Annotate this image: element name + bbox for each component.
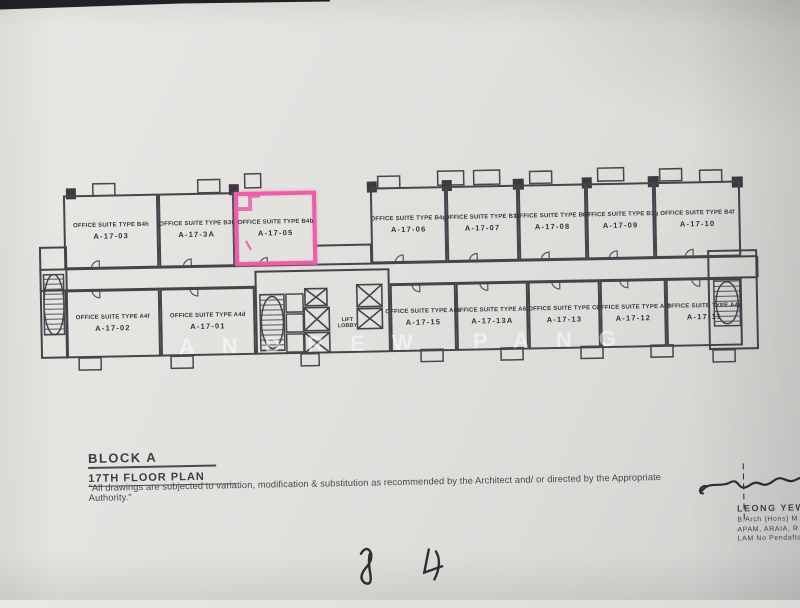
- room-a-17-03: OFFICE SUITE TYPE B4h A-17-03: [63, 194, 159, 270]
- architect-credential-3: LAM No Pendaftar: [738, 534, 800, 543]
- room-a-17-01: OFFICE SUITE TYPE A4d A-17-01: [160, 287, 256, 357]
- architect-credential-2: APAM, ARAIA, R: [737, 525, 800, 534]
- left-stair-tower: [39, 246, 69, 359]
- room-a-17-3a: OFFICE SUITE TYPE B3f A-17-3A: [158, 192, 235, 267]
- room-a-17-13a: OFFICE SUITE TYPE A6c A-17-13A: [456, 282, 529, 351]
- room-a-17-02: OFFICE SUITE TYPE A4f A-17-02: [65, 289, 161, 359]
- room-type-label: OFFICE SUITE TYPE C2: [528, 305, 600, 312]
- room-a-17-10: OFFICE SUITE TYPE B4f A-17-10: [654, 180, 741, 258]
- room-unit-label: A-17-10: [680, 219, 716, 229]
- room-type-label: OFFICE SUITE TYPE B4f: [660, 210, 734, 217]
- architect-signature-block: LEONG YEW K B.Arch (Hons) M APAM, ARAIA,…: [737, 502, 800, 545]
- photo-of-floor-plan: { "plan": { "watermark": "ANDREW PANG", …: [0, 0, 800, 600]
- room-a-17-08: OFFICE SUITE TYPE B3c A-17-08: [518, 183, 587, 260]
- room-unit-label: A-17-13: [547, 315, 583, 325]
- block-title: BLOCK A: [88, 449, 216, 469]
- room-unit-label: A-17-12: [616, 313, 652, 323]
- lift-lobby-label: LIFT LOBBY: [336, 317, 358, 329]
- paper-content: OFFICE SUITE TYPE B4h A-17-03 OFFICE SUI…: [0, 0, 800, 608]
- room-a-17-09: OFFICE SUITE TYPE B3g A-17-09: [586, 182, 655, 259]
- room-type-label: OFFICE SUITE TYPE B3c: [515, 212, 591, 219]
- room-unit-label: A-17-01: [190, 321, 226, 331]
- handwritten-initials: [361, 547, 443, 583]
- room-unit-label: A-17-15: [406, 317, 442, 327]
- room-unit-label: A-17-03: [93, 231, 129, 241]
- room-type-label: OFFICE SUITE TYPE A6c: [455, 307, 530, 314]
- room-type-label: OFFICE SUITE TYPE B3f: [159, 220, 233, 227]
- room-type-label: OFFICE SUITE TYPE A4d: [170, 312, 246, 319]
- room-a-17-07: OFFICE SUITE TYPE B3a A-17-07: [446, 185, 519, 262]
- room-a-17-06: OFFICE SUITE TYPE B4g A-17-06: [370, 186, 447, 263]
- room-a-17-05-highlighted: OFFICE SUITE TYPE B4b A-17-05: [234, 191, 317, 267]
- room-a-17-13: OFFICE SUITE TYPE C2 A-17-13: [528, 280, 601, 349]
- right-stair-tower: [707, 249, 759, 350]
- room-unit-label: A-17-02: [95, 323, 131, 333]
- room-a-17-12: OFFICE SUITE TYPE A6f A-17-12: [600, 279, 667, 348]
- room-type-label: OFFICE SUITE TYPE B4g: [370, 215, 446, 222]
- room-unit-label: A-17-07: [465, 223, 501, 233]
- architect-credential-1: B.Arch (Hons) M: [737, 515, 800, 524]
- room-unit-label: A-17-13A: [471, 316, 513, 326]
- room-type-label: OFFICE SUITE TYPE B3a: [445, 214, 521, 221]
- room-unit-label: A-17-3A: [178, 230, 215, 240]
- room-type-label: OFFICE SUITE TYPE A5b: [385, 308, 461, 315]
- room-type-label: OFFICE SUITE TYPE A4f: [76, 314, 150, 321]
- room-unit-label: A-17-06: [391, 224, 427, 234]
- room-a-17-15: OFFICE SUITE TYPE A5b A-17-15: [390, 283, 457, 352]
- room-type-label: OFFICE SUITE TYPE B4h: [73, 222, 149, 229]
- room-type-label: OFFICE SUITE TYPE A6f: [596, 304, 670, 311]
- architect-name: LEONG YEW K: [737, 502, 800, 514]
- room-unit-label: A-17-08: [535, 222, 571, 232]
- room-unit-label: A-17-05: [258, 228, 294, 238]
- room-unit-label: A-17-09: [603, 220, 639, 230]
- room-type-label: OFFICE SUITE TYPE B4b: [237, 219, 313, 226]
- lift-core: [254, 268, 391, 355]
- room-type-label: OFFICE SUITE TYPE B3g: [582, 211, 658, 218]
